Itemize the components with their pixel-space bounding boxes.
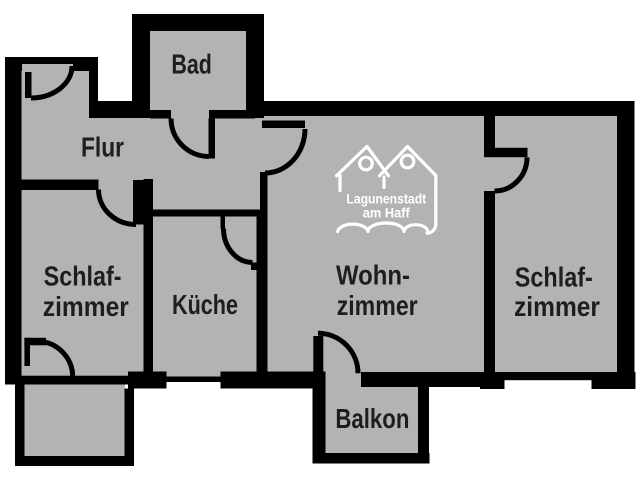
svg-text:zimmer: zimmer	[337, 290, 418, 321]
svg-text:Küche: Küche	[172, 289, 238, 320]
svg-text:Bad: Bad	[171, 48, 212, 79]
svg-text:Flur: Flur	[81, 132, 124, 163]
svg-text:Wohn-: Wohn-	[336, 260, 410, 291]
svg-text:zimmer: zimmer	[514, 291, 600, 322]
svg-text:Schlaf-: Schlaf-	[44, 261, 122, 292]
svg-text:zimmer: zimmer	[43, 291, 129, 322]
svg-text:Schlaf-: Schlaf-	[515, 261, 593, 292]
svg-text:Balkon: Balkon	[335, 403, 409, 434]
svg-text:am Haff: am Haff	[363, 206, 410, 222]
